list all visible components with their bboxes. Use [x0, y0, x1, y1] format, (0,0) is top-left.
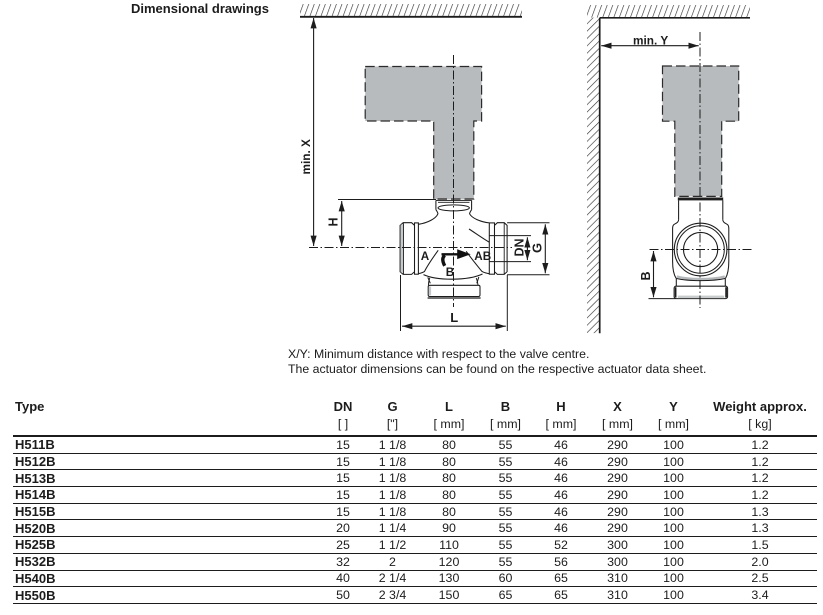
svg-text:AB: AB — [474, 250, 491, 263]
svg-text:B: B — [639, 271, 653, 280]
svg-text:min. Y: min. Y — [633, 33, 668, 47]
svg-text:B: B — [446, 266, 454, 279]
svg-text:DN: DN — [513, 238, 527, 256]
svg-text:H: H — [327, 217, 341, 226]
svg-text:G: G — [530, 243, 545, 253]
svg-text:L: L — [450, 310, 458, 325]
svg-text:min. X: min. X — [299, 139, 313, 175]
svg-text:A: A — [421, 250, 430, 263]
